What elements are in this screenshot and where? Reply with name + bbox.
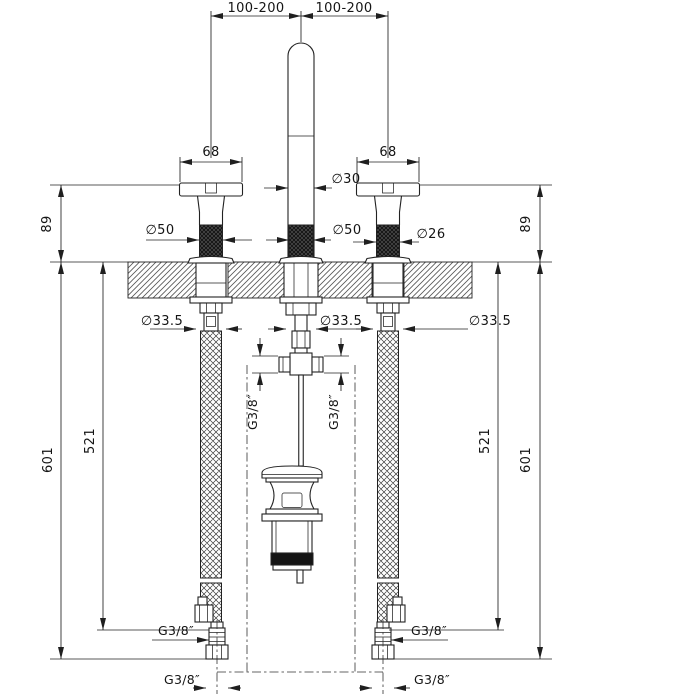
- dim-top-span-left: 100-200: [227, 1, 284, 16]
- drain-cap: [262, 466, 322, 478]
- right-washer: [367, 297, 409, 303]
- dim-hose-end-thread-left: G3/8″: [164, 672, 200, 687]
- popup-waste-drain: [262, 466, 322, 583]
- popup-rod: [299, 375, 304, 466]
- dim-spout-diameter: ∅30: [331, 172, 360, 187]
- left-cross-handle: [180, 183, 243, 263]
- dim-tee-thread-left: G3/8″: [245, 394, 260, 430]
- dim-spout-base-diameter: ∅50: [332, 223, 361, 238]
- spout: [279, 43, 323, 263]
- dim-deck-height-left: 89: [40, 215, 55, 232]
- dim-hose-length-inner-right: 521: [478, 428, 493, 454]
- dim-handle-width-left: 68: [202, 145, 219, 160]
- spout-base-flange: [279, 257, 323, 264]
- left-handle-knurl: [200, 225, 223, 257]
- dim-shank-diameter-right: ∅33.5: [469, 314, 511, 329]
- left-mounting-nut: [200, 303, 222, 313]
- dim-deck-height-right: 89: [519, 215, 534, 232]
- left-handle-base-flange: [188, 257, 234, 264]
- right-handle-base-flange: [365, 257, 411, 264]
- dim-hose-thread-right: G3/8″: [411, 623, 447, 638]
- dim-hose-thread-left: G3/8″: [158, 623, 194, 638]
- left-supply-assembly: [190, 297, 232, 659]
- drain-overflow-slot: [282, 493, 302, 508]
- dim-cartridge-diameter: ∅26: [416, 227, 445, 242]
- tee-port-right: [312, 357, 323, 372]
- right-handle-knurl: [377, 225, 400, 257]
- dim-tee-thread-right: G3/8″: [326, 394, 341, 430]
- right-supply-assembly: [367, 297, 409, 659]
- right-mounting-nut: [377, 303, 399, 313]
- faucet-installation-drawing: 100-200 100-200 68 68 89 89 ∅30 ∅50 ∅50: [0, 0, 700, 700]
- dim-hose-length-inner-left: 521: [83, 428, 98, 454]
- technical-drawing-canvas: 100-200 100-200 68 68 89 89 ∅30 ∅50 ∅50: [0, 0, 700, 700]
- tee-body: [290, 353, 312, 375]
- dim-hose-length-outer-right: 601: [519, 447, 534, 473]
- drain-pin: [297, 570, 303, 583]
- right-cross-handle: [357, 183, 420, 263]
- drain-flange: [262, 514, 322, 521]
- right-hose-elbow-fitting: [387, 605, 405, 622]
- dim-shank-diameter-center: ∅33.5: [320, 314, 362, 329]
- spout-knurl: [289, 225, 313, 257]
- dim-handle-width-right: 68: [379, 145, 396, 160]
- tee-port-left: [279, 357, 290, 372]
- left-hose-elbow-fitting: [195, 605, 213, 622]
- drain-body: [272, 521, 312, 553]
- left-washer: [190, 297, 232, 303]
- left-flex-hose: [201, 331, 222, 578]
- dim-hose-length-outer-left: 601: [41, 447, 56, 473]
- dim-hose-end-thread-right: G3/8″: [414, 672, 450, 687]
- drain-thread-band: [271, 553, 313, 565]
- right-flex-hose: [378, 331, 399, 578]
- center-valve-tee-assembly: [279, 297, 323, 466]
- dim-shank-diameter-left: ∅33.5: [141, 314, 183, 329]
- center-mounting-nut: [286, 303, 316, 315]
- dim-left-handle-diameter: ∅50: [145, 223, 174, 238]
- dim-top-span-right: 100-200: [315, 1, 372, 16]
